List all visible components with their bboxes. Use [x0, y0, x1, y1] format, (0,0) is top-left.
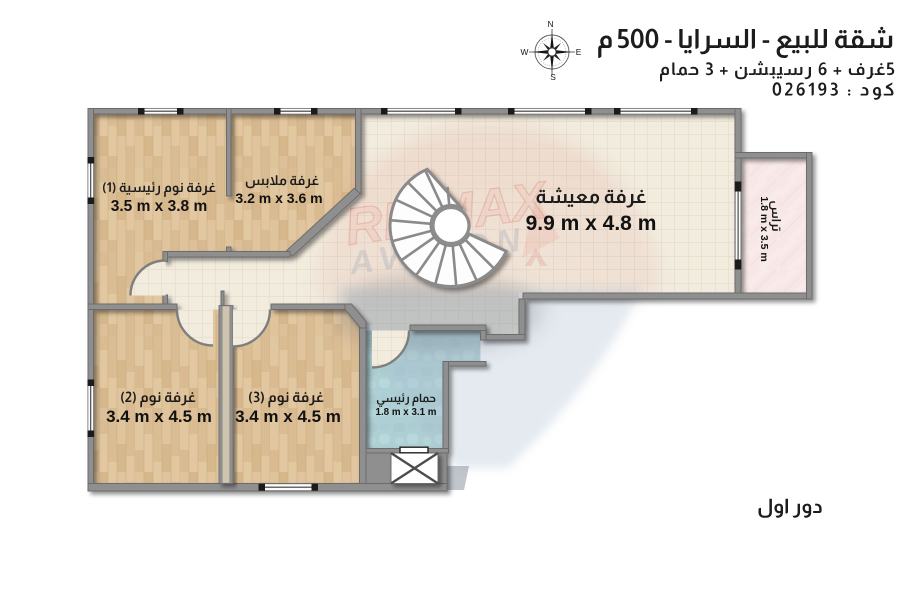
svg-text:W: W [521, 47, 529, 57]
svg-text:1.8 m x 3.5 m: 1.8 m x 3.5 m [758, 196, 770, 261]
svg-text:3.4 m x 4.5 m: 3.4 m x 4.5 m [106, 407, 212, 426]
svg-text:3.2 m x 3.6 m: 3.2 m x 3.6 m [235, 190, 322, 206]
svg-text:3.5 m x 3.8 m: 3.5 m x 3.8 m [111, 198, 208, 215]
svg-text:S: S [550, 72, 556, 82]
svg-text:3.4 m x 4.5 m: 3.4 m x 4.5 m [235, 407, 341, 426]
svg-text:1.8 m x 3.1 m: 1.8 m x 3.1 m [376, 407, 437, 418]
svg-text:9.9 m x 4.8 m: 9.9 m x 4.8 m [526, 212, 657, 235]
svg-text:N: N [547, 19, 553, 29]
svg-text:E: E [576, 47, 582, 57]
